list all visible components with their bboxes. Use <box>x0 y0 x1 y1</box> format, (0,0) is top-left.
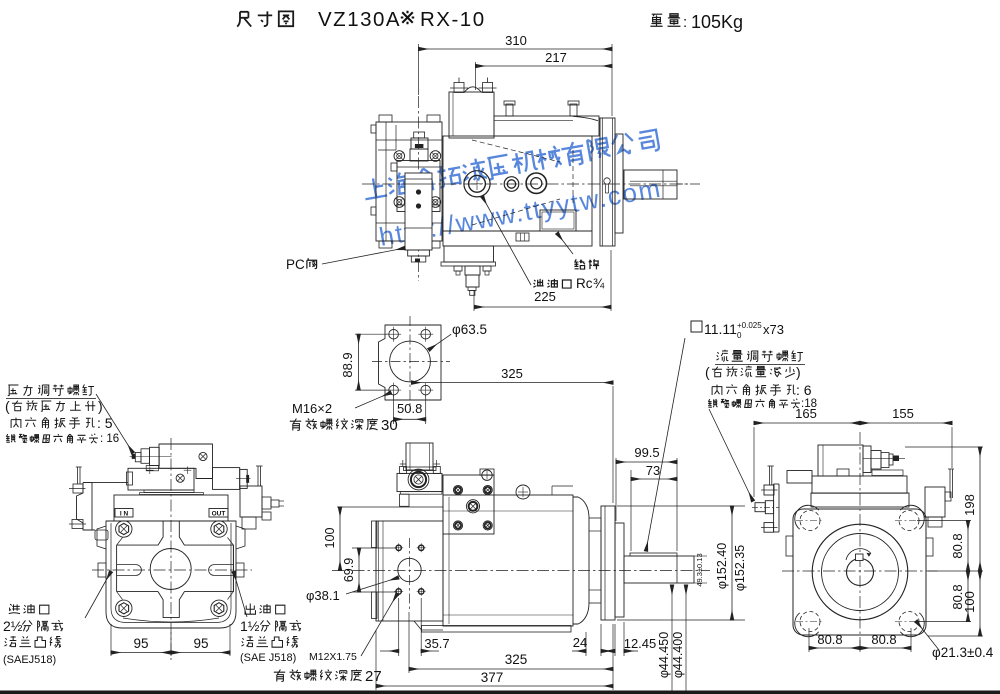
svg-text:M16×2: M16×2 <box>292 401 332 416</box>
svg-text:325: 325 <box>505 652 528 667</box>
svg-text:VZ130A: VZ130A <box>318 8 401 31</box>
svg-text:φ38.1: φ38.1 <box>306 588 340 603</box>
svg-text:95: 95 <box>133 636 148 651</box>
svg-text:(SAE J518): (SAE J518) <box>240 652 296 664</box>
svg-text:φ44.450: φ44.450 <box>657 632 671 678</box>
svg-text:100: 100 <box>962 591 977 613</box>
svg-text:325: 325 <box>501 366 523 381</box>
svg-text:): ) <box>796 364 801 380</box>
svg-text:80.8: 80.8 <box>871 632 896 647</box>
svg-text:24: 24 <box>573 635 587 650</box>
svg-text:φ152.35: φ152.35 <box>733 545 747 591</box>
svg-text:105Kg: 105Kg <box>691 12 743 32</box>
svg-text:x73: x73 <box>763 322 784 337</box>
svg-text:198: 198 <box>962 494 977 516</box>
svg-text:2½: 2½ <box>3 618 23 634</box>
svg-text:217: 217 <box>545 50 567 65</box>
svg-text:φ44.400: φ44.400 <box>671 632 685 678</box>
svg-text:69.9: 69.9 <box>342 558 356 582</box>
svg-text:PC: PC <box>286 257 305 272</box>
svg-text:I N: I N <box>120 511 129 518</box>
svg-text:225: 225 <box>534 289 556 304</box>
svg-text:0: 0 <box>737 331 742 340</box>
svg-text:310: 310 <box>505 33 527 48</box>
svg-text:49.3±0.13: 49.3±0.13 <box>695 553 704 586</box>
svg-text:99.5: 99.5 <box>634 445 659 460</box>
svg-text::: : <box>683 14 687 31</box>
svg-text:155: 155 <box>892 406 914 421</box>
svg-text:12.45: 12.45 <box>624 636 657 651</box>
svg-text:+0.025: +0.025 <box>737 321 762 330</box>
svg-text:11.11: 11.11 <box>704 321 737 337</box>
svg-text:φ63.5: φ63.5 <box>452 322 487 337</box>
svg-text:73: 73 <box>646 463 660 478</box>
svg-text:¾: ¾ <box>593 276 605 291</box>
svg-text:377: 377 <box>481 670 504 685</box>
svg-text:M12X1.75: M12X1.75 <box>309 651 357 663</box>
svg-text:88.9: 88.9 <box>340 352 355 377</box>
svg-text:(SAEJ518): (SAEJ518) <box>3 654 56 666</box>
svg-text:80.8: 80.8 <box>817 632 842 647</box>
svg-text:30: 30 <box>381 417 398 434</box>
svg-text:Rc: Rc <box>576 276 593 291</box>
svg-text:1½: 1½ <box>240 618 260 634</box>
svg-text::18: :18 <box>801 398 817 410</box>
svg-text:35.7: 35.7 <box>424 636 449 651</box>
svg-text:φ152.40: φ152.40 <box>715 543 729 589</box>
svg-text:φ21.3±0.4: φ21.3±0.4 <box>932 645 994 660</box>
svg-text:80.8: 80.8 <box>950 533 965 558</box>
svg-text:50.8: 50.8 <box>397 401 422 416</box>
svg-text:RX-10: RX-10 <box>420 8 486 31</box>
svg-text:: 6: : 6 <box>796 382 812 398</box>
svg-text:(: ( <box>705 364 710 380</box>
svg-text:: 16: : 16 <box>100 433 119 445</box>
svg-text:(: ( <box>5 398 10 414</box>
svg-text:100: 100 <box>323 528 337 549</box>
svg-text:95: 95 <box>193 636 208 651</box>
svg-text:OUT: OUT <box>212 511 226 518</box>
svg-text:27: 27 <box>365 668 382 685</box>
